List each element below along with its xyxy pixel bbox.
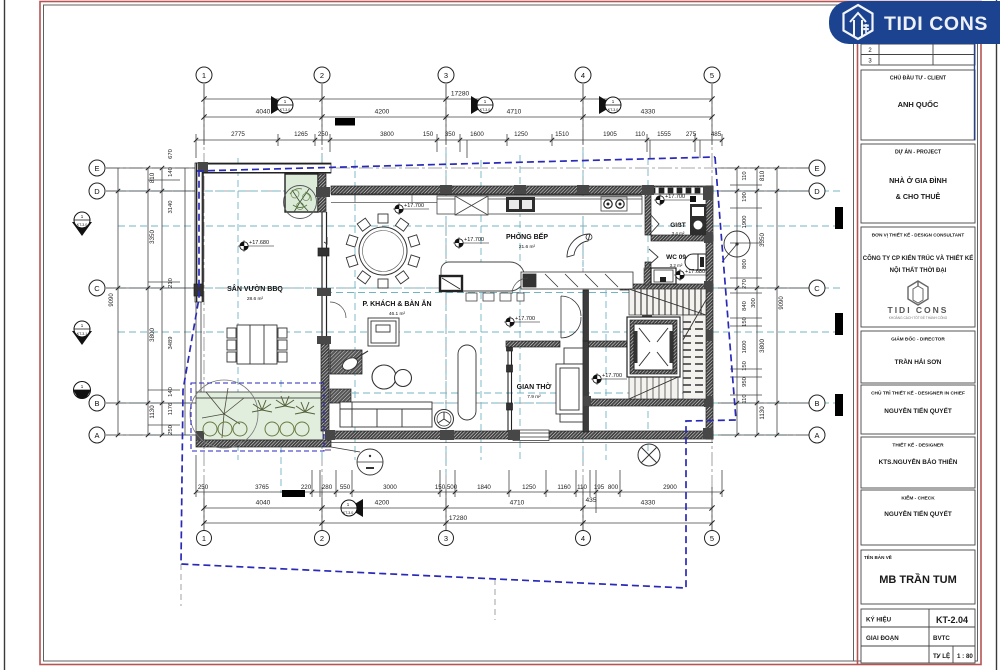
svg-text:140: 140 bbox=[168, 387, 174, 397]
svg-text:B: B bbox=[94, 399, 99, 408]
svg-text:KHOẢNG CÁCH TỒT ĐỂ THÀNH CÔNG: KHOẢNG CÁCH TỒT ĐỂ THÀNH CÔNG bbox=[889, 315, 948, 320]
svg-text:KT-3.0: KT-3.0 bbox=[77, 223, 88, 227]
svg-text:1600: 1600 bbox=[470, 131, 484, 138]
svg-text:1: 1 bbox=[202, 534, 206, 543]
svg-text:28.6 m²: 28.6 m² bbox=[247, 296, 264, 302]
svg-text:275: 275 bbox=[686, 131, 697, 138]
svg-text:150: 150 bbox=[435, 484, 446, 491]
svg-text:500: 500 bbox=[447, 484, 458, 491]
svg-text:110: 110 bbox=[742, 394, 748, 403]
svg-text:ANH QUỐC: ANH QUỐC bbox=[898, 99, 939, 109]
svg-text:250: 250 bbox=[168, 425, 174, 435]
svg-text:3: 3 bbox=[444, 534, 448, 543]
svg-text:810: 810 bbox=[149, 172, 156, 183]
svg-text:KT-3.0: KT-3.0 bbox=[343, 511, 354, 515]
svg-text:THIẾT KẾ - DESIGNER: THIẾT KẾ - DESIGNER bbox=[892, 442, 944, 449]
svg-text:NHÀ Ở GIA ĐÌNH: NHÀ Ở GIA ĐÌNH bbox=[889, 176, 947, 185]
svg-text:280: 280 bbox=[322, 484, 333, 491]
svg-text:485: 485 bbox=[711, 131, 722, 138]
svg-text:190: 190 bbox=[742, 192, 748, 202]
svg-text:1130: 1130 bbox=[759, 406, 766, 420]
svg-text:KTS.NGUYỄN BẢO THIÊN: KTS.NGUYỄN BẢO THIÊN bbox=[879, 457, 958, 466]
svg-text:D: D bbox=[94, 187, 100, 196]
svg-text:A: A bbox=[94, 431, 99, 440]
svg-text:TIDI CONS: TIDI CONS bbox=[884, 13, 988, 35]
svg-text:150: 150 bbox=[423, 131, 434, 138]
svg-text:4040: 4040 bbox=[256, 109, 271, 116]
svg-text:+17.700: +17.700 bbox=[464, 237, 484, 243]
svg-text:140: 140 bbox=[168, 167, 174, 177]
svg-text:3765: 3765 bbox=[255, 484, 269, 491]
svg-text:+17.700: +17.700 bbox=[602, 373, 622, 379]
svg-text:9090: 9090 bbox=[779, 296, 785, 310]
svg-text:110: 110 bbox=[577, 484, 587, 491]
svg-text:4200: 4200 bbox=[375, 109, 390, 116]
svg-text:2775: 2775 bbox=[231, 131, 245, 138]
svg-text:4200: 4200 bbox=[375, 500, 390, 507]
svg-text:C: C bbox=[94, 284, 100, 293]
svg-text:3489: 3489 bbox=[168, 337, 174, 350]
svg-text:350: 350 bbox=[445, 131, 456, 138]
svg-text:3.2 m²: 3.2 m² bbox=[670, 263, 683, 268]
svg-text:3800: 3800 bbox=[149, 328, 156, 342]
svg-text:1 : 80: 1 : 80 bbox=[957, 653, 973, 660]
svg-text:250: 250 bbox=[318, 131, 329, 138]
svg-text:800: 800 bbox=[742, 259, 748, 269]
svg-text:3350: 3350 bbox=[149, 230, 156, 244]
svg-text:+17.700: +17.700 bbox=[404, 203, 424, 209]
svg-text:P. KHÁCH & BÀN ĂN: P. KHÁCH & BÀN ĂN bbox=[362, 299, 431, 308]
svg-text:4710: 4710 bbox=[510, 500, 525, 507]
svg-text:E: E bbox=[814, 164, 819, 173]
svg-text:KT-3.0: KT-3.0 bbox=[608, 108, 619, 112]
svg-text:GIAI ĐOẠN: GIAI ĐOẠN bbox=[866, 635, 899, 642]
svg-text:270: 270 bbox=[742, 279, 748, 289]
svg-text:5: 5 bbox=[710, 534, 714, 543]
svg-text:+17.680: +17.680 bbox=[249, 240, 269, 246]
svg-text:1250: 1250 bbox=[514, 131, 528, 138]
svg-text:150: 150 bbox=[742, 317, 748, 327]
svg-text:46.1 m²: 46.1 m² bbox=[389, 311, 406, 317]
svg-text:4: 4 bbox=[581, 71, 585, 80]
svg-text:& CHO THUÊ: & CHO THUÊ bbox=[896, 192, 941, 201]
svg-text:SÂN VƯỜN BBQ: SÂN VƯỜN BBQ bbox=[227, 284, 283, 293]
svg-text:4330: 4330 bbox=[641, 109, 656, 116]
svg-text:5: 5 bbox=[710, 71, 714, 80]
svg-text:435: 435 bbox=[585, 497, 596, 504]
svg-text:1510: 1510 bbox=[555, 131, 569, 138]
svg-text:7.9 m²: 7.9 m² bbox=[527, 394, 541, 400]
svg-text:21.6 m²: 21.6 m² bbox=[519, 244, 536, 250]
svg-text:1130: 1130 bbox=[149, 405, 156, 419]
svg-text:195: 195 bbox=[594, 484, 605, 491]
svg-text:9090: 9090 bbox=[109, 293, 115, 307]
svg-text:1840: 1840 bbox=[477, 484, 491, 491]
svg-text:150: 150 bbox=[742, 361, 748, 371]
svg-text:B: B bbox=[814, 399, 819, 408]
svg-text:4040: 4040 bbox=[256, 500, 271, 507]
svg-text:17280: 17280 bbox=[449, 515, 468, 522]
svg-text:KT-3.1: KT-3.1 bbox=[77, 393, 88, 397]
svg-text:+17.700: +17.700 bbox=[665, 194, 685, 200]
svg-text:D: D bbox=[814, 187, 820, 196]
svg-text:2900: 2900 bbox=[663, 484, 677, 491]
svg-text:WC 09: WC 09 bbox=[666, 254, 686, 261]
svg-text:2: 2 bbox=[320, 534, 324, 543]
svg-text:3000: 3000 bbox=[383, 484, 397, 491]
svg-text:1265: 1265 bbox=[294, 131, 308, 138]
svg-text:3800: 3800 bbox=[759, 339, 766, 353]
svg-text:4330: 4330 bbox=[641, 500, 656, 507]
svg-text:A: A bbox=[814, 431, 819, 440]
svg-text:17280: 17280 bbox=[451, 91, 470, 98]
svg-text:300: 300 bbox=[751, 298, 757, 308]
svg-text:ĐƠN VỊ THIẾT KẾ - DESIGN CONSU: ĐƠN VỊ THIẾT KẾ - DESIGN CONSULTANT bbox=[872, 232, 964, 238]
svg-text:550: 550 bbox=[340, 484, 351, 491]
svg-text:CHỦ ĐẦU TƯ - CLIENT: CHỦ ĐẦU TƯ - CLIENT bbox=[890, 75, 947, 82]
svg-text:KT-3.1: KT-3.1 bbox=[77, 332, 88, 336]
svg-text:CÔNG TY CP KIẾN TRÚC VÀ THIẾT: CÔNG TY CP KIẾN TRÚC VÀ THIẾT KẾ bbox=[863, 254, 973, 262]
svg-text:TIDI CONS: TIDI CONS bbox=[888, 305, 949, 315]
svg-text:1905: 1905 bbox=[603, 131, 617, 138]
svg-text:NỘI THẤT THỜI ĐẠI: NỘI THẤT THỜI ĐẠI bbox=[890, 266, 947, 274]
svg-text:950: 950 bbox=[742, 377, 748, 387]
svg-text:KT-3.0: KT-3.0 bbox=[480, 108, 491, 112]
svg-text:1176: 1176 bbox=[168, 403, 174, 415]
svg-text:KIỂM - CHECK: KIỂM - CHECK bbox=[901, 495, 935, 502]
svg-text:2: 2 bbox=[320, 71, 324, 80]
svg-text:250: 250 bbox=[198, 484, 209, 491]
svg-text:KT-3.0: KT-3.0 bbox=[280, 108, 291, 112]
svg-text:3140: 3140 bbox=[168, 201, 174, 214]
svg-text:810: 810 bbox=[759, 170, 766, 181]
svg-text:E: E bbox=[94, 164, 99, 173]
svg-text:3350: 3350 bbox=[759, 233, 766, 247]
svg-text:1555: 1555 bbox=[657, 131, 671, 138]
svg-text:670: 670 bbox=[168, 149, 174, 159]
svg-text:1: 1 bbox=[202, 71, 206, 80]
svg-text:3800: 3800 bbox=[380, 131, 394, 138]
svg-text:1600: 1600 bbox=[742, 341, 748, 354]
svg-text:BVTC: BVTC bbox=[933, 635, 950, 642]
svg-text:TÊN BẢN VẼ: TÊN BẢN VẼ bbox=[864, 553, 892, 560]
svg-text:DỰ ÁN - PROJECT: DỰ ÁN - PROJECT bbox=[895, 149, 942, 156]
svg-text:4: 4 bbox=[581, 534, 585, 543]
svg-text:110: 110 bbox=[635, 131, 645, 138]
svg-text:110: 110 bbox=[742, 171, 748, 180]
svg-text:4710: 4710 bbox=[507, 109, 522, 116]
svg-text:KT-2.04: KT-2.04 bbox=[936, 615, 968, 625]
svg-text:3: 3 bbox=[444, 71, 448, 80]
svg-text:GIÁM ĐỐC - DIRECTOR: GIÁM ĐỐC - DIRECTOR bbox=[891, 336, 945, 343]
svg-text:210: 210 bbox=[168, 278, 174, 288]
svg-text:840: 840 bbox=[742, 301, 748, 311]
svg-text:GIAN THỜ: GIAN THỜ bbox=[517, 382, 552, 391]
svg-text:GIẞT: GIẞT bbox=[670, 222, 686, 229]
svg-text:MB TRẦN TUM: MB TRẦN TUM bbox=[879, 573, 957, 586]
svg-text:1900: 1900 bbox=[742, 216, 748, 229]
svg-text:C: C bbox=[814, 284, 820, 293]
svg-text:+17.700: +17.700 bbox=[515, 316, 535, 322]
svg-text:220: 220 bbox=[301, 484, 312, 491]
svg-text:1250: 1250 bbox=[522, 484, 536, 491]
svg-text:3.4 m²: 3.4 m² bbox=[672, 231, 685, 236]
svg-text:TỾ LỆ: TỾ LỆ bbox=[933, 652, 950, 660]
svg-text:800: 800 bbox=[608, 484, 619, 491]
svg-text:1160: 1160 bbox=[557, 484, 571, 491]
svg-text:KÝ HIỆU: KÝ HIỆU bbox=[866, 616, 892, 624]
svg-text:+17.680: +17.680 bbox=[685, 269, 705, 275]
